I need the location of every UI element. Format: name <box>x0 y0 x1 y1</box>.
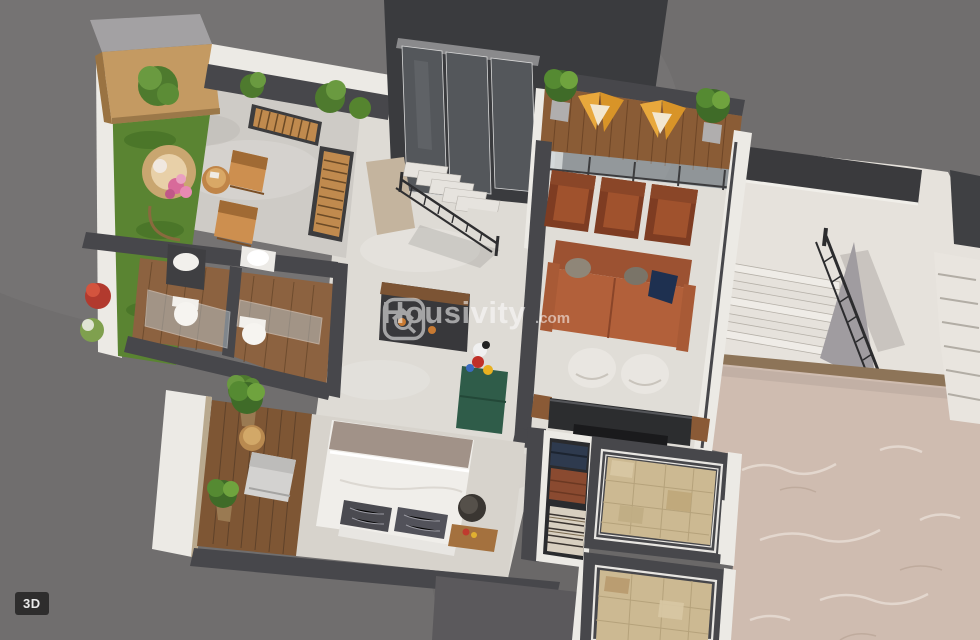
view-mode-3d-badge[interactable]: 3D <box>15 592 49 615</box>
floorplan-3d-view[interactable] <box>0 0 980 640</box>
utility-rooms <box>580 436 742 640</box>
armchair-1 <box>544 170 596 232</box>
armchair-3 <box>644 184 698 246</box>
sofa-pillow-olive <box>624 267 648 285</box>
terrace-table <box>202 166 230 194</box>
screenshot-root: Housivity .com 3D <box>0 0 980 640</box>
tv-console-hall <box>379 282 470 352</box>
bedroom-armchair <box>244 452 296 502</box>
bedroom-wicker-table <box>239 425 265 451</box>
terrace-chair-2 <box>214 200 258 246</box>
armchair-2 <box>594 177 646 239</box>
living-room <box>512 130 752 470</box>
wardrobe-drawers <box>549 468 587 504</box>
sofa-pillow-gray <box>565 258 591 278</box>
terrace-chair-1 <box>227 150 268 194</box>
